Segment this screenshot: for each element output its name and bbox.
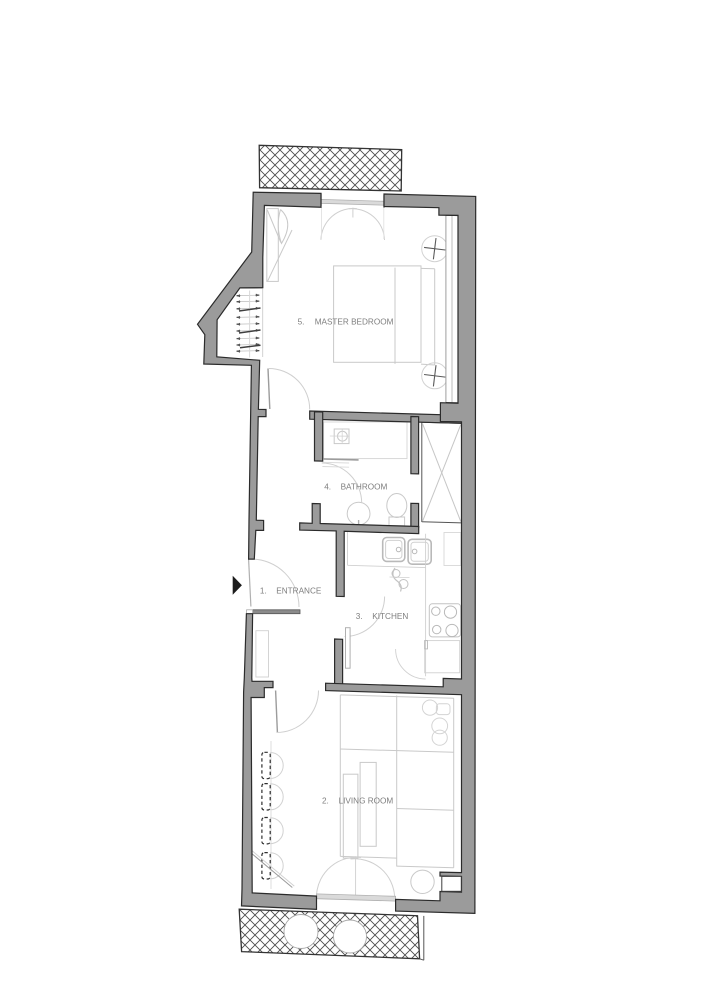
svg-text:MASTER BEDROOM: MASTER BEDROOM bbox=[315, 317, 394, 326]
svg-text:LIVING ROOM: LIVING ROOM bbox=[339, 796, 394, 805]
svg-text:ENTRANCE: ENTRANCE bbox=[276, 586, 322, 595]
svg-text:5.: 5. bbox=[298, 317, 305, 326]
svg-text:4.: 4. bbox=[324, 482, 331, 491]
svg-text:BATHROOM: BATHROOM bbox=[341, 482, 388, 491]
svg-text:3.: 3. bbox=[356, 612, 363, 621]
svg-text:KITCHEN: KITCHEN bbox=[372, 612, 408, 621]
svg-text:2.: 2. bbox=[322, 796, 329, 805]
svg-text:1.: 1. bbox=[260, 586, 267, 595]
